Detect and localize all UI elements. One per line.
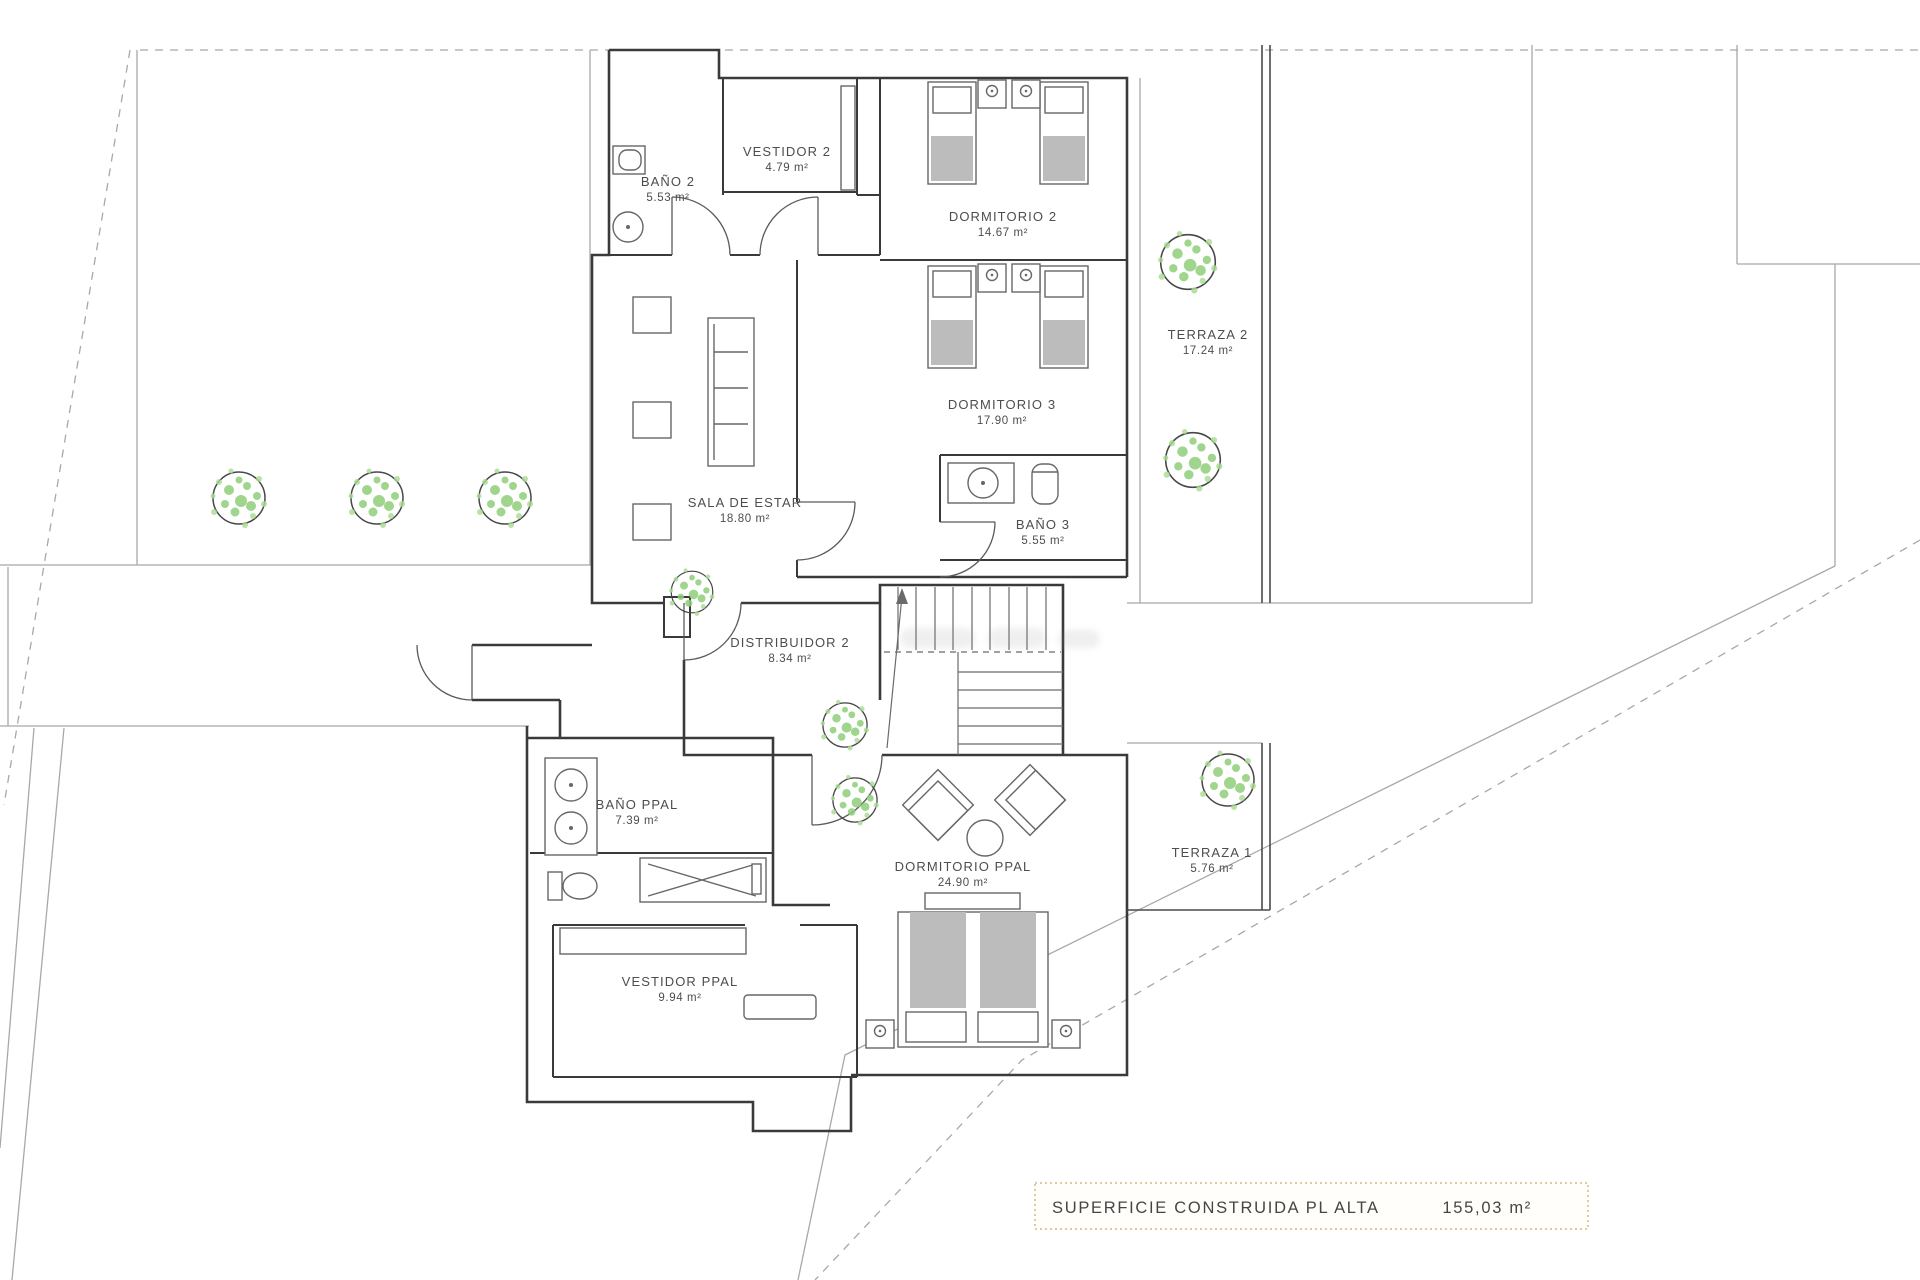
bench [744,995,816,1019]
door-distribuidor [684,603,741,660]
svg-text:5.53 m²: 5.53 m² [646,192,689,204]
parcel-boundary-left-diagonal [4,50,130,805]
site-slope-lines [0,728,64,1280]
room-label-distribuidor2: DISTRIBUIDOR 2 8.34 m² [730,635,849,665]
svg-text:DORMITORIO 3: DORMITORIO 3 [948,397,1056,412]
floor-plan-canvas: BAÑO 2 5.53 m² VESTIDOR 2 4.79 m² DORMIT… [0,0,1920,1280]
svg-text:SALA DE ESTAR: SALA DE ESTAR [688,495,803,510]
parcel-boundary-right-diagonal [815,540,1920,1280]
tree-icon [1163,429,1222,491]
floor-plan-drawing: BAÑO 2 5.53 m² VESTIDOR 2 4.79 m² DORMIT… [0,0,1920,1280]
tree-icon [1158,231,1217,293]
site-boundary-lines [0,45,1920,1280]
room-label-dormitorio2: DORMITORIO 2 14.67 m² [949,209,1057,239]
svg-text:BAÑO 2: BAÑO 2 [641,174,695,189]
terraza2-right-wall [1262,45,1270,603]
door-bano3 [940,522,995,577]
tree-icon [477,469,534,529]
room-label-bano-ppal: BAÑO PPAL 7.39 m² [596,797,679,827]
summary-value: 155,03 m² [1442,1199,1532,1217]
roof-edge-right [1127,45,1532,603]
site-line-left [0,567,529,726]
terraza1-walls [1127,743,1270,910]
wardrobe [560,928,746,954]
svg-text:TERRAZA 1: TERRAZA 1 [1172,845,1253,860]
svg-text:7.39 m²: 7.39 m² [615,815,658,827]
svg-text:17.24 m²: 17.24 m² [1183,345,1233,357]
room-label-dormitorio3: DORMITORIO 3 17.90 m² [948,397,1056,427]
round-table [967,820,1003,856]
svg-text:24.90 m²: 24.90 m² [938,877,988,889]
beds-dormitorio2 [928,80,1088,184]
svg-text:5.76 m²: 5.76 m² [1190,863,1233,875]
door-vestidor2 [760,197,818,255]
svg-text:DISTRIBUIDOR 2: DISTRIBUIDOR 2 [730,635,849,650]
svg-text:VESTIDOR 2: VESTIDOR 2 [743,144,831,159]
furniture [545,80,1088,1048]
room-label-vestidor2: VESTIDOR 2 4.79 m² [743,144,831,174]
svg-text:8.34 m²: 8.34 m² [768,653,811,665]
summary-label: SUPERFICIE CONSTRUIDA PL ALTA [1052,1199,1380,1217]
svg-text:BAÑO 3: BAÑO 3 [1016,517,1070,532]
svg-text:18.80 m²: 18.80 m² [720,513,770,525]
door-bano-ppal [417,645,472,700]
tree-icon [211,469,268,529]
svg-text:9.94 m²: 9.94 m² [658,992,701,1004]
beds-dormitorio3 [928,264,1088,368]
svg-text:14.67 m²: 14.67 m² [978,227,1028,239]
staircase [884,587,1063,755]
svg-text:4.79 m²: 4.79 m² [765,162,808,174]
bed-bench [925,893,1020,909]
summary-box: SUPERFICIE CONSTRUIDA PL ALTA 155,03 m² [1035,1183,1588,1229]
svg-text:17.90 m²: 17.90 m² [977,415,1027,427]
door-dormitorio3 [797,502,855,560]
stair-direction-arrow [887,596,902,748]
svg-text:VESTIDOR PPAL: VESTIDOR PPAL [622,974,739,989]
room-label-bano2: BAÑO 2 5.53 m² [641,174,695,204]
tree-icon [349,469,406,529]
tree-icon [831,775,879,826]
svg-text:DORMITORIO PPAL: DORMITORIO PPAL [895,859,1032,874]
sofa [708,318,754,466]
room-label-vestidor-ppal: VESTIDOR PPAL 9.94 m² [622,974,739,1004]
bano2-fixtures [613,146,645,242]
watermark [900,628,1100,648]
room-label-terraza2: TERRAZA 2 17.24 m² [1168,327,1249,357]
bano-ppal-fixtures [545,758,766,902]
roof-terrace-left-outline [0,50,592,565]
room-label-dormitorio-ppal: DORMITORIO PPAL 24.90 m² [895,859,1032,889]
svg-text:5.55 m²: 5.55 m² [1021,535,1064,547]
svg-text:BAÑO PPAL: BAÑO PPAL [596,797,679,812]
tree-icon [821,700,869,751]
neighbor-outline-top-right [1737,45,1920,566]
vestidor2-wardrobe [841,86,855,190]
bano3-fixtures [948,463,1058,504]
tree-icon [1200,751,1257,811]
svg-text:DORMITORIO 2: DORMITORIO 2 [949,209,1057,224]
room-label-sala-de-estar: SALA DE ESTAR 18.80 m² [688,495,803,525]
dorm-ppal-furniture [866,765,1080,1048]
door-bano2 [672,197,730,255]
room-label-bano3: BAÑO 3 5.55 m² [1016,517,1070,547]
room-labels: BAÑO 2 5.53 m² VESTIDOR 2 4.79 m² DORMIT… [596,144,1253,1004]
svg-text:TERRAZA 2: TERRAZA 2 [1168,327,1249,342]
